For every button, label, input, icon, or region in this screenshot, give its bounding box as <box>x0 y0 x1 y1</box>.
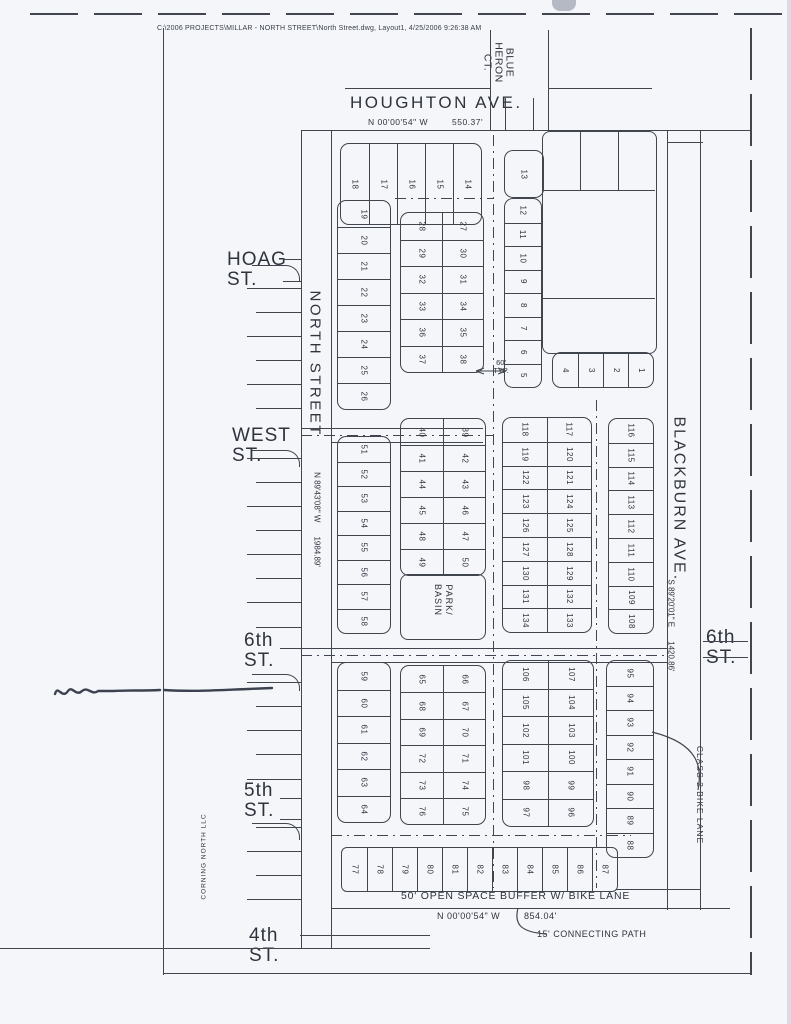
lot: 63 <box>338 769 390 796</box>
street-label-line: 6th <box>244 631 274 651</box>
lot: 119 <box>503 442 547 466</box>
lot-number: 11 <box>519 230 528 239</box>
bearing-south-boundary: N 00'00'54" W <box>437 911 500 921</box>
lot-number: 92 <box>626 742 635 752</box>
lot-number: 26 <box>360 392 369 402</box>
lot-number: 130 <box>520 566 529 581</box>
lot: 57 <box>338 584 390 609</box>
lot-number: 94 <box>626 693 635 703</box>
lot: 106 <box>503 661 548 689</box>
lot-number: 86 <box>576 865 585 875</box>
lot-number: 121 <box>565 471 574 486</box>
lot-number: 43 <box>460 480 469 490</box>
lot: 90 <box>607 784 653 809</box>
lot: 84 <box>517 848 542 891</box>
map-line <box>493 135 494 888</box>
lot-block-mid_grid_2: 404144454849394243464750 <box>400 418 486 576</box>
lot-number: 131 <box>520 590 529 605</box>
lot-number: 113 <box>626 496 635 510</box>
map-line <box>345 88 490 89</box>
parcel-outline <box>400 574 486 640</box>
lot: 22 <box>338 279 390 305</box>
lot-number: 12 <box>519 206 528 216</box>
lot-number: 35 <box>459 328 468 338</box>
file-path-header: C:\2006 PROJECTS\MILLAR - NORTH STREET\N… <box>157 25 481 32</box>
lot-number: 66 <box>460 674 469 684</box>
lot: 2 <box>603 353 628 387</box>
annotation-connecting-path: 15' CONNECTING PATH <box>537 929 646 939</box>
lot: 37 <box>401 346 442 373</box>
lot: 72 <box>401 745 443 771</box>
lot-number: 22 <box>360 288 369 298</box>
lot-number: 111 <box>626 544 635 558</box>
lot-block-se_row: 4321 <box>552 352 654 388</box>
lot: 61 <box>338 716 390 743</box>
lot-number: 81 <box>451 865 460 875</box>
lot-number: 89 <box>626 816 635 826</box>
lot: 117 <box>547 418 591 442</box>
lot: 107 <box>548 661 593 689</box>
lot-number: 102 <box>521 723 530 738</box>
lot-number: 72 <box>418 754 427 764</box>
lot: 128 <box>547 537 591 561</box>
lot-block-east_grid_2: 10610510210198971071041031009996 <box>502 660 594 827</box>
lot: 73 <box>401 772 443 798</box>
plat-map-sheet: C:\2006 PROJECTS\MILLAR - NORTH STREET\N… <box>0 0 791 1024</box>
lot: 126 <box>503 513 547 537</box>
lot: 81 <box>442 848 467 891</box>
map-line <box>505 98 506 130</box>
lot: 30 <box>442 240 483 267</box>
lot-number: 90 <box>626 791 635 801</box>
lot-number: 96 <box>567 808 576 818</box>
lot-number: 127 <box>520 542 529 557</box>
lot: 35 <box>442 319 483 346</box>
lot: 102 <box>503 716 548 744</box>
frontage-tick <box>256 754 301 755</box>
lot: 45 <box>401 497 443 523</box>
lot-number: 85 <box>551 865 560 875</box>
lot-block-west_col_1: 1920212223242526 <box>337 200 391 410</box>
lot-number: 30 <box>459 248 468 258</box>
frontage-tick <box>256 578 301 579</box>
lot-number: 58 <box>360 616 369 626</box>
lot: 50 <box>443 549 485 575</box>
lot-number: 61 <box>360 725 369 735</box>
lot-number: 114 <box>626 472 635 486</box>
map-line <box>280 648 667 649</box>
lot-number: 53 <box>360 494 369 504</box>
lot-number: 80 <box>426 865 435 875</box>
lot-number: 98 <box>521 780 530 790</box>
frontage-tick <box>256 530 301 531</box>
lot: 101 <box>503 744 548 772</box>
street-corner-curve <box>252 674 300 691</box>
lot: 70 <box>443 719 485 745</box>
lot-number: 116 <box>626 424 635 438</box>
bearing-west-boundary: N 89'43'08" W1984.89' <box>313 430 322 610</box>
map-line <box>750 28 752 975</box>
lot-number: 69 <box>418 728 427 738</box>
lot-number: 45 <box>418 506 427 516</box>
map-line <box>30 13 788 15</box>
lot: 85 <box>542 848 567 891</box>
lot-number: 103 <box>566 723 575 738</box>
lot: 34 <box>442 293 483 320</box>
lot: 99 <box>548 771 593 799</box>
lot-number: 57 <box>360 592 369 602</box>
lot: 114 <box>609 467 653 491</box>
map-line <box>280 798 301 799</box>
lot-number: 19 <box>360 209 369 219</box>
lot-number: 68 <box>418 701 427 711</box>
lot-number: 64 <box>360 804 369 814</box>
street-label-line: 4th <box>249 926 279 946</box>
connecting-path-leader-line <box>506 906 550 938</box>
lot-number: 23 <box>360 314 369 324</box>
lot: 108 <box>609 609 653 633</box>
map-line <box>703 657 748 658</box>
lot: 118 <box>503 418 547 442</box>
lot: 86 <box>567 848 592 891</box>
lot-number: 33 <box>417 301 426 311</box>
lot-number: 77 <box>350 865 359 875</box>
map-line <box>331 908 730 909</box>
lot-number: 128 <box>565 542 574 557</box>
lot: 125 <box>547 513 591 537</box>
lot: 44 <box>401 471 443 497</box>
street-label-5th-st: 5th ST. <box>244 781 274 821</box>
lot: 98 <box>503 771 548 799</box>
lot: 109 <box>609 586 653 610</box>
lot: 74 <box>443 772 485 798</box>
map-line <box>616 889 700 890</box>
lot-number: 56 <box>360 567 369 577</box>
lot: 75 <box>443 798 485 824</box>
frontage-tick <box>247 602 301 603</box>
street-label-north-street: NORTH STREET <box>307 291 324 421</box>
map-line <box>331 835 631 836</box>
lot-block-mid_grid_1: 282932333637273031343538 <box>400 212 484 373</box>
lot-number: 122 <box>520 471 529 486</box>
lot-number: 84 <box>526 865 535 875</box>
lot: 43 <box>443 471 485 497</box>
lot-number: 37 <box>417 354 426 364</box>
lot: 29 <box>401 240 442 267</box>
frontage-tick <box>256 360 301 361</box>
lot-number: 2 <box>611 368 620 373</box>
map-line <box>667 142 703 143</box>
lot: 110 <box>609 562 653 586</box>
scan-edge-shadow <box>787 0 791 1024</box>
lot-number: 1 <box>636 368 645 373</box>
map-line <box>283 259 301 260</box>
lot: 26 <box>338 383 390 409</box>
map-line <box>280 819 301 820</box>
street-label-line: 6th <box>706 628 736 648</box>
lot-number: 55 <box>360 543 369 553</box>
map-line <box>301 131 302 948</box>
lot: 132 <box>547 585 591 609</box>
lot: 115 <box>609 443 653 467</box>
lot-number: 76 <box>418 807 427 817</box>
lot: 97 <box>503 799 548 827</box>
lot: 56 <box>338 560 390 585</box>
scan-smudge <box>552 0 576 11</box>
lot-number: 36 <box>417 328 426 338</box>
lot: 95 <box>607 661 653 686</box>
lot-number: 74 <box>460 780 469 790</box>
lot-block-south_row: 7778798081828384858687 <box>341 847 618 892</box>
lot-number: 34 <box>459 301 468 311</box>
lot: 82 <box>467 848 492 891</box>
lot-number: 50 <box>460 558 469 568</box>
street-corner-curve <box>252 823 300 840</box>
distance-houghton: 550.37' <box>452 117 483 127</box>
lot: 64 <box>338 796 390 823</box>
lot-number: 109 <box>626 591 635 606</box>
lot: 13 <box>505 151 543 197</box>
lot: 100 <box>548 744 593 772</box>
lot-number: 95 <box>626 668 635 678</box>
lot-number: 120 <box>565 447 574 462</box>
lot-number: 93 <box>626 718 635 728</box>
lot-number: 27 <box>459 221 468 231</box>
lot-number: 112 <box>626 519 635 533</box>
lot-number: 5 <box>518 373 527 378</box>
lot: 89 <box>607 808 653 833</box>
lot-number: 78 <box>376 865 385 875</box>
lot-number: 75 <box>460 807 469 817</box>
lot-number: 104 <box>566 695 575 710</box>
lot: 127 <box>503 537 547 561</box>
lot-number: 24 <box>360 340 369 350</box>
lot-number: 63 <box>360 778 369 788</box>
lot: 76 <box>401 798 443 824</box>
lot: 129 <box>547 561 591 585</box>
lot: 91 <box>607 759 653 784</box>
lot: 40 <box>401 419 443 445</box>
lot-number: 79 <box>401 865 410 875</box>
lot: 46 <box>443 497 485 523</box>
lot-number: 67 <box>460 701 469 711</box>
lot-block-ne_col: 12111098765 <box>504 198 542 388</box>
map-line <box>533 98 534 130</box>
lot-number: 7 <box>518 326 527 331</box>
lot: 10 <box>505 246 541 270</box>
lot: 20 <box>338 227 390 253</box>
frontage-tick <box>256 482 301 483</box>
lot-number: 28 <box>417 221 426 231</box>
lot-number: 70 <box>460 728 469 738</box>
bike-lane-leader-line <box>646 724 704 792</box>
lot: 24 <box>338 331 390 357</box>
lot-block-east_col_1: 116115114113112111110109108 <box>608 418 654 634</box>
lot: 62 <box>338 743 390 770</box>
street-label-houghton-ave: HOUGHTON AVE. <box>350 93 523 113</box>
lot-number: 15 <box>435 179 444 189</box>
lot-number: 52 <box>360 469 369 479</box>
lot: 55 <box>338 535 390 560</box>
lot: 131 <box>503 585 547 609</box>
frontage-tick <box>256 312 301 313</box>
street-label-6th-st-east: 6th ST. <box>706 628 736 668</box>
lot: 93 <box>607 710 653 735</box>
street-label-line: ST. <box>244 651 274 671</box>
lot-number: 106 <box>521 667 530 682</box>
street-label-6th-st-west: 6th ST. <box>244 631 274 671</box>
street-label-line: WEST <box>232 426 291 446</box>
lot-number: 44 <box>418 480 427 490</box>
map-line <box>301 655 667 656</box>
lot: 5 <box>505 364 541 388</box>
street-label-line: ST. <box>244 801 274 821</box>
lot: 67 <box>443 692 485 718</box>
lot: 9 <box>505 270 541 294</box>
lot-number: 17 <box>379 179 388 189</box>
lot-number: 29 <box>417 248 426 258</box>
lot: 87 <box>592 848 617 891</box>
lot: 25 <box>338 357 390 383</box>
lot-number: 41 <box>418 454 427 464</box>
frontage-tick <box>247 288 301 289</box>
lot-number: 16 <box>407 179 416 189</box>
street-corner-curve <box>252 265 300 282</box>
lot: 41 <box>401 445 443 471</box>
lot-number: 99 <box>567 780 576 790</box>
lot-number: 8 <box>518 303 527 308</box>
lot: 65 <box>401 666 443 692</box>
lot: 79 <box>392 848 417 891</box>
map-line <box>300 935 430 936</box>
lot: 12 <box>505 199 541 223</box>
lot: 105 <box>503 689 548 717</box>
lot-number: 65 <box>418 674 427 684</box>
lot: 122 <box>503 466 547 490</box>
lot-number: 133 <box>565 613 574 628</box>
frontage-tick <box>247 779 301 780</box>
lot: 120 <box>547 442 591 466</box>
lot-number: 10 <box>519 253 528 263</box>
lot-number: 87 <box>601 865 610 875</box>
lot: 11 <box>505 223 541 247</box>
lot: 4 <box>553 353 578 387</box>
lot: 54 <box>338 511 390 536</box>
frontage-tick <box>256 408 301 409</box>
lot-number: 60 <box>360 698 369 708</box>
frontage-tick <box>247 899 301 900</box>
lot: 47 <box>443 523 485 549</box>
lot-block-mid_grid_3: 656869727376666770717475 <box>400 665 486 825</box>
frontage-tick <box>247 554 301 555</box>
parcel-outline <box>542 131 657 354</box>
lot: 124 <box>547 489 591 513</box>
street-label-4th-st: 4th ST. <box>249 926 279 966</box>
lot-number: 115 <box>626 448 635 462</box>
lot-number: 125 <box>565 518 574 533</box>
lot-block-east_grid_1: 1181191221231261271301311341171201211241… <box>502 417 592 633</box>
lot: 38 <box>442 346 483 373</box>
annotation-owner-corning-north-llc: CORNING NORTH LLC <box>201 811 208 903</box>
lot-number: 107 <box>566 667 575 682</box>
map-line <box>667 131 668 910</box>
lot-number: 119 <box>520 447 529 461</box>
lot: 49 <box>401 549 443 575</box>
lot: 8 <box>505 293 541 317</box>
lot-number: 73 <box>418 780 427 790</box>
lot: 68 <box>401 692 443 718</box>
frontage-tick <box>247 730 301 731</box>
lot-number: 100 <box>566 750 575 765</box>
lot-number: 105 <box>521 695 530 710</box>
lot: 59 <box>338 663 390 690</box>
lot: 21 <box>338 253 390 279</box>
map-line <box>490 30 491 130</box>
lot: 134 <box>503 608 547 632</box>
lot: 121 <box>547 466 591 490</box>
lot: 7 <box>505 317 541 341</box>
lot-block-east_col_2: 9594939291908988 <box>606 660 654 858</box>
map-line <box>331 131 332 948</box>
frontage-tick <box>256 875 301 876</box>
map-line <box>700 131 701 910</box>
lot: 6 <box>505 340 541 364</box>
lot-number: 118 <box>520 423 529 437</box>
lot: 78 <box>367 848 392 891</box>
frontage-tick <box>256 627 301 628</box>
lot-number: 123 <box>520 494 529 509</box>
lot: 39 <box>443 419 485 445</box>
lot: 116 <box>609 419 653 443</box>
map-line <box>703 641 748 642</box>
lot-number: 13 <box>520 169 529 179</box>
lot: 77 <box>342 848 367 891</box>
lot-number: 132 <box>565 590 574 605</box>
lot-number: 49 <box>418 558 427 568</box>
lot: 52 <box>338 462 390 487</box>
frontage-tick <box>247 506 301 507</box>
street-label-blue-heron-ct: BLUE HERON CT. <box>482 33 515 93</box>
bearing-houghton: N 00'00'54" W <box>368 117 428 127</box>
map-line <box>163 973 750 974</box>
lot: 58 <box>338 609 390 634</box>
lot: 111 <box>609 538 653 562</box>
lot-number: 47 <box>460 532 469 542</box>
lot-number: 38 <box>459 354 468 364</box>
lot-number: 59 <box>360 671 369 681</box>
lot: 1 <box>628 353 653 387</box>
street-corner-curve <box>252 450 300 467</box>
street-label-line: BLUE <box>504 33 515 93</box>
map-line <box>301 130 750 131</box>
lot-number: 83 <box>501 865 510 875</box>
distance-text: 1984.89' <box>313 522 322 566</box>
lot-number: 4 <box>561 368 570 373</box>
lot: 51 <box>338 437 390 462</box>
lot-number: 39 <box>460 427 469 437</box>
lot-number: 3 <box>586 368 595 373</box>
lot: 92 <box>607 735 653 760</box>
lot: 19 <box>338 201 390 227</box>
lot: 28 <box>401 213 442 240</box>
street-label-line: HERON <box>493 33 504 93</box>
lot: 23 <box>338 305 390 331</box>
frontage-tick <box>247 384 301 385</box>
lot: 83 <box>492 848 517 891</box>
lot-number: 48 <box>418 532 427 542</box>
lot-number: 14 <box>463 179 472 189</box>
street-label-line: 5th <box>244 781 274 801</box>
